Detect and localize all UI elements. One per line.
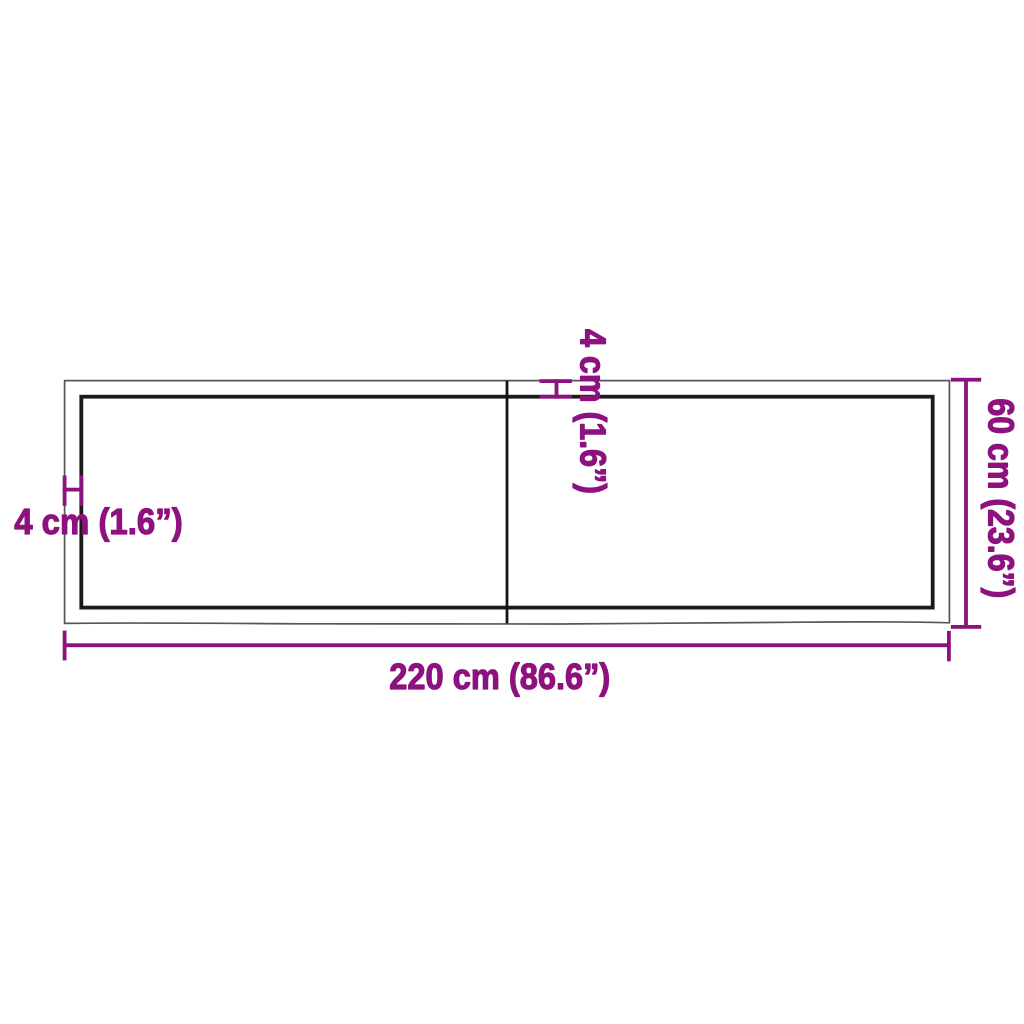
svg-text:4 cm (1.6”): 4 cm (1.6”) [572, 329, 613, 494]
svg-text:220 cm (86.6”): 220 cm (86.6”) [389, 656, 610, 697]
svg-text:4 cm (1.6”): 4 cm (1.6”) [14, 501, 183, 542]
svg-text:60 cm (23.6”): 60 cm (23.6”) [980, 398, 1021, 598]
